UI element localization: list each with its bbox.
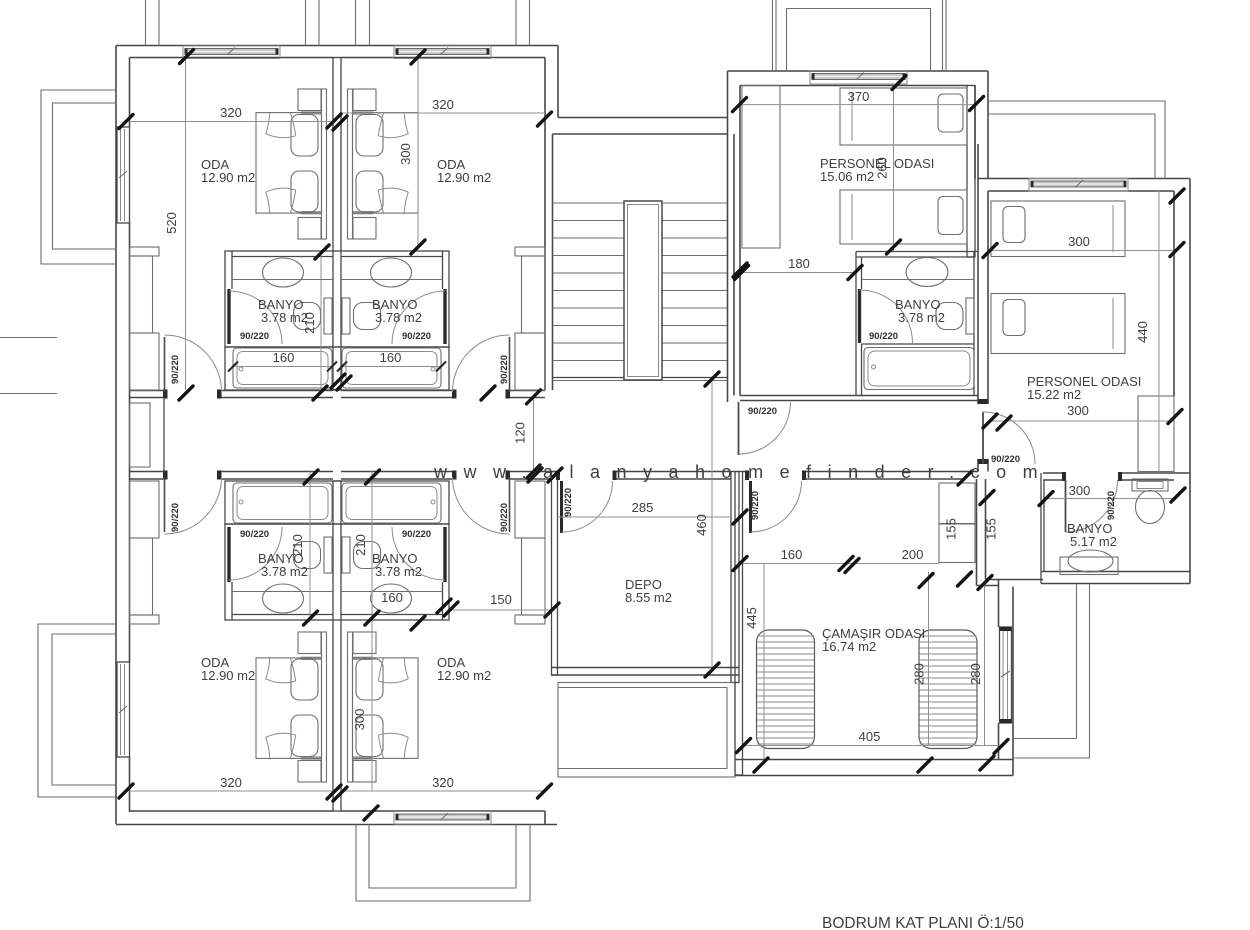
svg-text:155: 155 (984, 518, 999, 540)
svg-text:210: 210 (353, 534, 368, 556)
svg-text:300: 300 (1067, 403, 1089, 418)
svg-text:90/220: 90/220 (402, 331, 431, 342)
svg-text:440: 440 (1135, 321, 1150, 343)
svg-text:12.90 m2: 12.90 m2 (437, 668, 491, 683)
svg-text:460: 460 (694, 514, 709, 536)
svg-text:210: 210 (290, 534, 305, 556)
svg-text:15.06 m2: 15.06 m2 (820, 169, 874, 184)
svg-text:260: 260 (875, 157, 890, 179)
svg-text:8.55 m2: 8.55 m2 (625, 590, 672, 605)
svg-text:16.74 m2: 16.74 m2 (822, 639, 876, 654)
svg-text:90/220: 90/220 (402, 529, 431, 540)
svg-text:520: 520 (164, 212, 179, 234)
svg-text:90/220: 90/220 (748, 406, 777, 417)
svg-text:90/220: 90/220 (499, 503, 510, 532)
svg-text:320: 320 (432, 775, 454, 790)
svg-text:405: 405 (859, 729, 881, 744)
svg-text:BODRUM KAT PLANI Ö:1/50: BODRUM KAT PLANI Ö:1/50 (822, 914, 1024, 930)
svg-text:3.78 m2: 3.78 m2 (261, 310, 308, 325)
svg-text:www.alanyahomefinder.com: www.alanyahomefinder.com (433, 462, 1054, 482)
svg-text:12.90 m2: 12.90 m2 (437, 170, 491, 185)
svg-text:445: 445 (744, 607, 759, 629)
svg-text:90/220: 90/220 (1106, 491, 1117, 520)
svg-text:12.90 m2: 12.90 m2 (201, 170, 255, 185)
svg-text:285: 285 (632, 500, 654, 515)
svg-text:300: 300 (352, 709, 367, 731)
svg-text:160: 160 (273, 350, 295, 365)
svg-text:180: 180 (788, 256, 810, 271)
svg-text:200: 200 (902, 547, 924, 562)
svg-text:3.78 m2: 3.78 m2 (261, 564, 308, 579)
svg-text:300: 300 (1068, 234, 1090, 249)
svg-text:90/220: 90/220 (499, 355, 510, 384)
svg-text:3.78 m2: 3.78 m2 (375, 564, 422, 579)
svg-text:5.17 m2: 5.17 m2 (1070, 534, 1117, 549)
svg-text:90/220: 90/220 (240, 529, 269, 540)
svg-text:90/220: 90/220 (170, 503, 181, 532)
svg-text:15.22 m2: 15.22 m2 (1027, 387, 1081, 402)
svg-text:150: 150 (490, 592, 512, 607)
svg-text:280: 280 (912, 663, 927, 685)
svg-text:90/220: 90/220 (750, 491, 761, 520)
svg-text:120: 120 (513, 422, 528, 444)
svg-text:280: 280 (968, 663, 983, 685)
svg-text:3.78 m2: 3.78 m2 (375, 310, 422, 325)
svg-text:160: 160 (781, 547, 803, 562)
svg-text:90/220: 90/220 (240, 331, 269, 342)
svg-text:300: 300 (398, 143, 413, 165)
svg-text:320: 320 (220, 775, 242, 790)
svg-text:90/220: 90/220 (170, 355, 181, 384)
svg-text:320: 320 (432, 97, 454, 112)
svg-text:160: 160 (381, 590, 403, 605)
svg-text:210: 210 (302, 312, 317, 334)
svg-text:90/220: 90/220 (869, 331, 898, 342)
svg-text:300: 300 (1069, 483, 1091, 498)
svg-text:3.78 m2: 3.78 m2 (898, 310, 945, 325)
svg-text:370: 370 (848, 89, 870, 104)
svg-text:155: 155 (944, 518, 959, 540)
svg-text:160: 160 (380, 350, 402, 365)
svg-text:12.90 m2: 12.90 m2 (201, 668, 255, 683)
svg-text:90/220: 90/220 (563, 488, 574, 517)
svg-text:320: 320 (220, 105, 242, 120)
